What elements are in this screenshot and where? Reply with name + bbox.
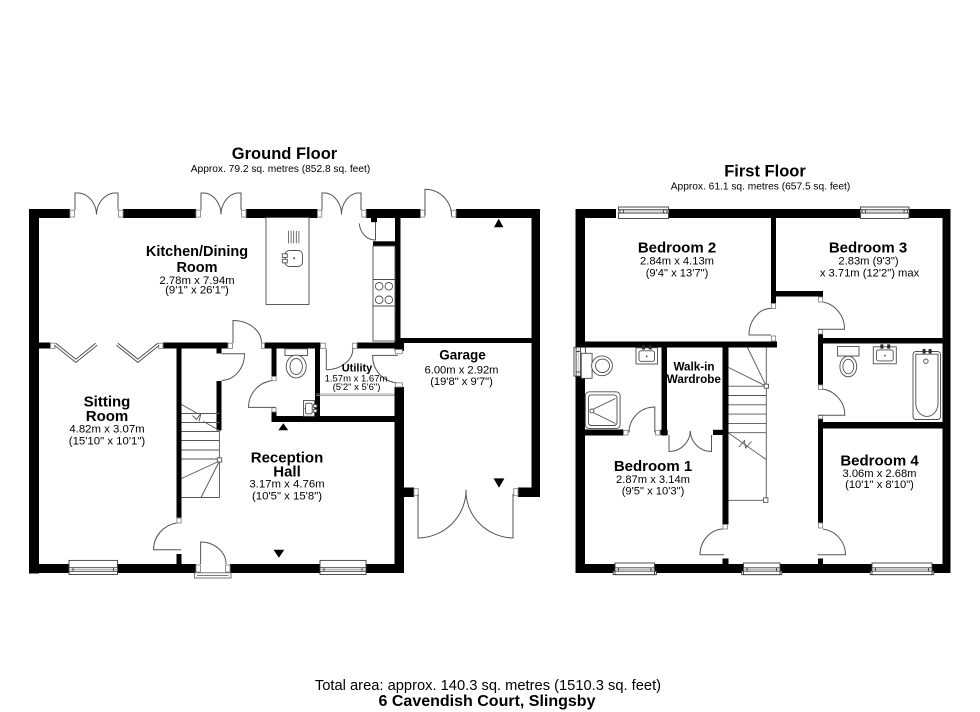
svg-text:Kitchen/Dining: Kitchen/Dining [146, 244, 248, 260]
svg-text:(9'5" x 10'3"): (9'5" x 10'3") [622, 485, 685, 497]
svg-text:(9'4" x 13'7"): (9'4" x 13'7") [646, 268, 709, 280]
svg-text:(10'1" x 8'10"): (10'1" x 8'10") [845, 479, 914, 491]
svg-text:(15'10" x 10'1"): (15'10" x 10'1") [69, 435, 146, 447]
svg-text:6 Cavendish Court, Slingsby: 6 Cavendish Court, Slingsby [379, 693, 596, 710]
svg-text:Approx. 61.1 sq. metres (657.5: Approx. 61.1 sq. metres (657.5 sq. feet) [671, 182, 851, 193]
svg-text:6.00m x 2.92m: 6.00m x 2.92m [425, 365, 499, 377]
svg-text:Bedroom 1: Bedroom 1 [614, 458, 692, 475]
svg-text:2.84m x 4.13m: 2.84m x 4.13m [640, 256, 714, 268]
svg-text:Ground Floor: Ground Floor [232, 145, 338, 163]
svg-text:(9'1" x 26'1"): (9'1" x 26'1") [165, 285, 229, 297]
svg-text:First Floor: First Floor [724, 162, 806, 180]
svg-text:3.06m x 2.68m: 3.06m x 2.68m [843, 468, 917, 480]
svg-text:Total area: approx. 140.3 sq.: Total area: approx. 140.3 sq. metres (15… [315, 678, 661, 694]
svg-text:(19'8" x 9'7"): (19'8" x 9'7") [430, 376, 493, 388]
svg-text:Room: Room [176, 260, 217, 276]
svg-text:x 3.71m (12'2") max: x 3.71m (12'2") max [820, 268, 920, 280]
svg-text:Garage: Garage [439, 348, 486, 363]
svg-text:Bedroom 3: Bedroom 3 [829, 239, 907, 256]
svg-text:4.82m x 3.07m: 4.82m x 3.07m [69, 423, 144, 435]
svg-text:(10'5" x 15'8"): (10'5" x 15'8") [252, 491, 322, 503]
svg-text:Bedroom 2: Bedroom 2 [638, 239, 716, 256]
svg-text:Approx. 79.2 sq. metres (852.8: Approx. 79.2 sq. metres (852.8 sq. feet) [191, 164, 371, 175]
svg-text:Walk-in: Walk-in [673, 361, 714, 374]
svg-text:(5'2" x 5'6"): (5'2" x 5'6") [333, 382, 381, 393]
svg-text:3.17m x 4.76m: 3.17m x 4.76m [249, 479, 324, 491]
svg-text:2.83m (9'3"): 2.83m (9'3") [838, 256, 898, 268]
svg-text:Wardrobe: Wardrobe [667, 373, 722, 386]
